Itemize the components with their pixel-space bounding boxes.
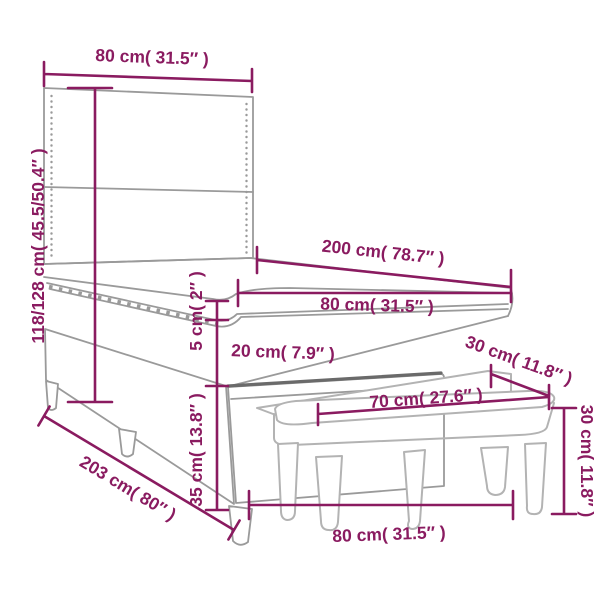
- bench-leg-rear-left: [316, 456, 342, 530]
- headboard-panel: [44, 88, 253, 264]
- dim-mattress-height-label: 20 cm( 7.9″ ): [231, 340, 335, 364]
- bench-leg-front-left: [278, 443, 298, 520]
- bed-leg-4: [404, 450, 425, 529]
- dim-bed-length-top-label: 200 cm( 78.7″ ): [321, 236, 446, 269]
- dim-bench-height: 30 cm( 11.8″ ): [552, 405, 597, 517]
- dim-total-height-label: 118/128 cm( 45.5/50.4″ ): [28, 148, 48, 343]
- dim-base-height-label: 35 cm( 13.8″ ): [186, 393, 206, 506]
- dim-mattress-width-label: 80 cm( 31.5″ ): [320, 294, 434, 317]
- topper-seam-lower: [50, 289, 508, 327]
- dim-headboard-width-label: 80 cm( 31.5″ ): [95, 45, 209, 69]
- dim-bench-height-label: 30 cm( 11.8″ ): [577, 405, 597, 517]
- bench-leg-front-right: [525, 443, 546, 514]
- diagram-canvas: 80 cm( 31.5″ ) 118/128 cm( 45.5/50.4″ ) …: [0, 0, 600, 600]
- dimension-diagram: 80 cm( 31.5″ ) 118/128 cm( 45.5/50.4″ ) …: [0, 0, 600, 600]
- dim-bench-total-length-label: 80 cm( 31.5″ ): [332, 522, 446, 546]
- dim-headboard-width: 80 cm( 31.5″ ): [44, 45, 252, 92]
- dim-bench-height-line: [552, 408, 576, 514]
- bench-leg-rear-right: [481, 447, 508, 495]
- dim-topper-height-label: 5 cm( 2″ ): [186, 271, 206, 350]
- bed-leg-1: [46, 381, 58, 410]
- bed-leg-2: [119, 429, 136, 457]
